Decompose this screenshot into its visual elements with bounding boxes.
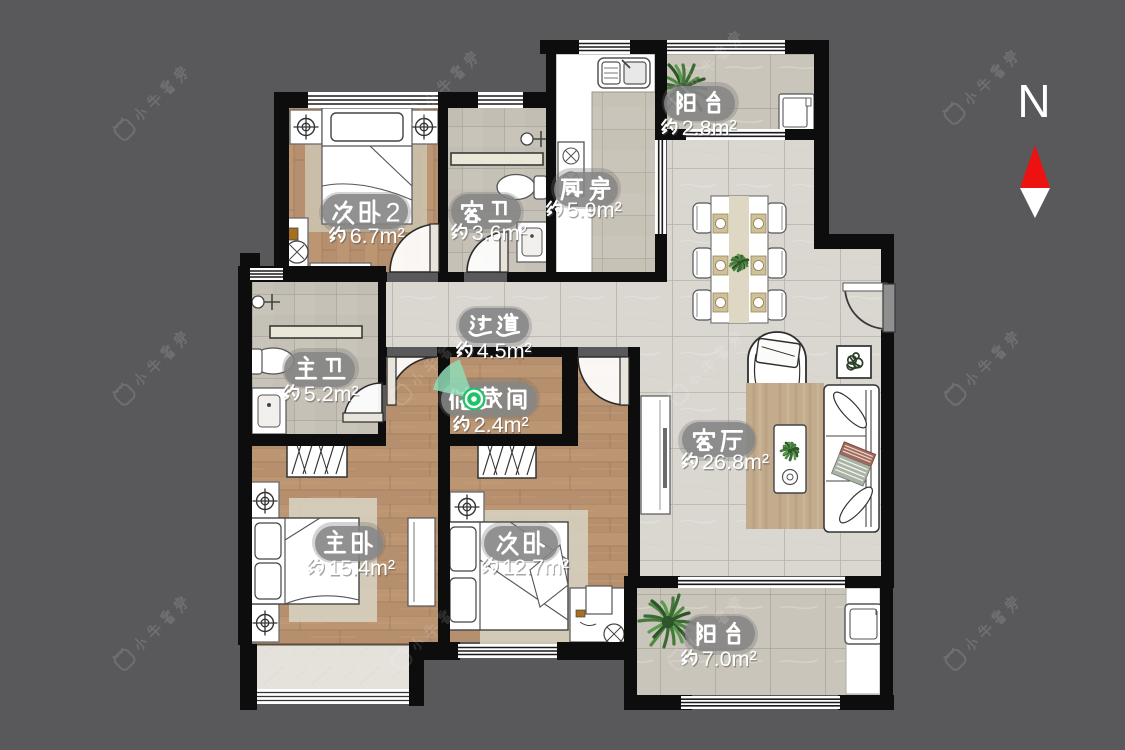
svg-text:26.8m²: 26.8m² bbox=[702, 450, 769, 474]
svg-text:5.2m²: 5.2m² bbox=[304, 382, 359, 406]
svg-text:2: 2 bbox=[385, 198, 400, 228]
svg-text:12.7m²: 12.7m² bbox=[502, 555, 569, 579]
svg-text:6.7m²: 6.7m² bbox=[350, 224, 405, 248]
svg-text:2.8m²: 2.8m² bbox=[682, 116, 737, 140]
svg-text:5.9m²: 5.9m² bbox=[567, 198, 622, 222]
svg-text:4.5m²: 4.5m² bbox=[477, 339, 532, 363]
svg-text:2.4m²: 2.4m² bbox=[474, 413, 529, 437]
svg-text:15.4m²: 15.4m² bbox=[328, 556, 395, 580]
svg-text:N: N bbox=[1017, 75, 1050, 127]
svg-text:3.6m²: 3.6m² bbox=[472, 221, 527, 245]
svg-text:7.0m²: 7.0m² bbox=[702, 647, 757, 671]
